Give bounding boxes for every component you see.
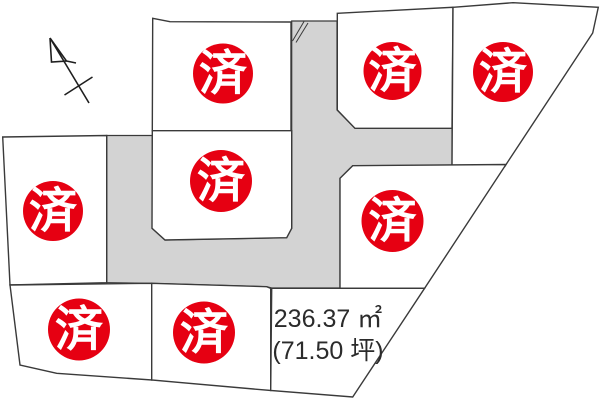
sold-badge-label: 済 [368, 45, 417, 98]
sold-badge-label: 済 [180, 307, 229, 360]
subdivision-map-canvas: 236.37 ㎡ (71.50 坪) 済 済 済 済 済 済 済 済 [0, 0, 600, 404]
sold-badge-label: 済 [55, 304, 104, 357]
subdivision-map: 236.37 ㎡ (71.50 坪) 済 済 済 済 済 済 済 済 [0, 0, 600, 404]
sold-badge-label: 済 [199, 48, 248, 101]
sold-badge-label: 済 [368, 195, 417, 248]
area-tsubo-label: (71.50 坪) [272, 337, 383, 365]
sold-badge-label: 済 [479, 46, 528, 99]
sold-badge-label: 済 [29, 185, 78, 238]
area-m2-label: 236.37 ㎡ [274, 305, 382, 333]
north-arrow-icon [50, 38, 93, 103]
sold-badge-label: 済 [197, 155, 246, 208]
